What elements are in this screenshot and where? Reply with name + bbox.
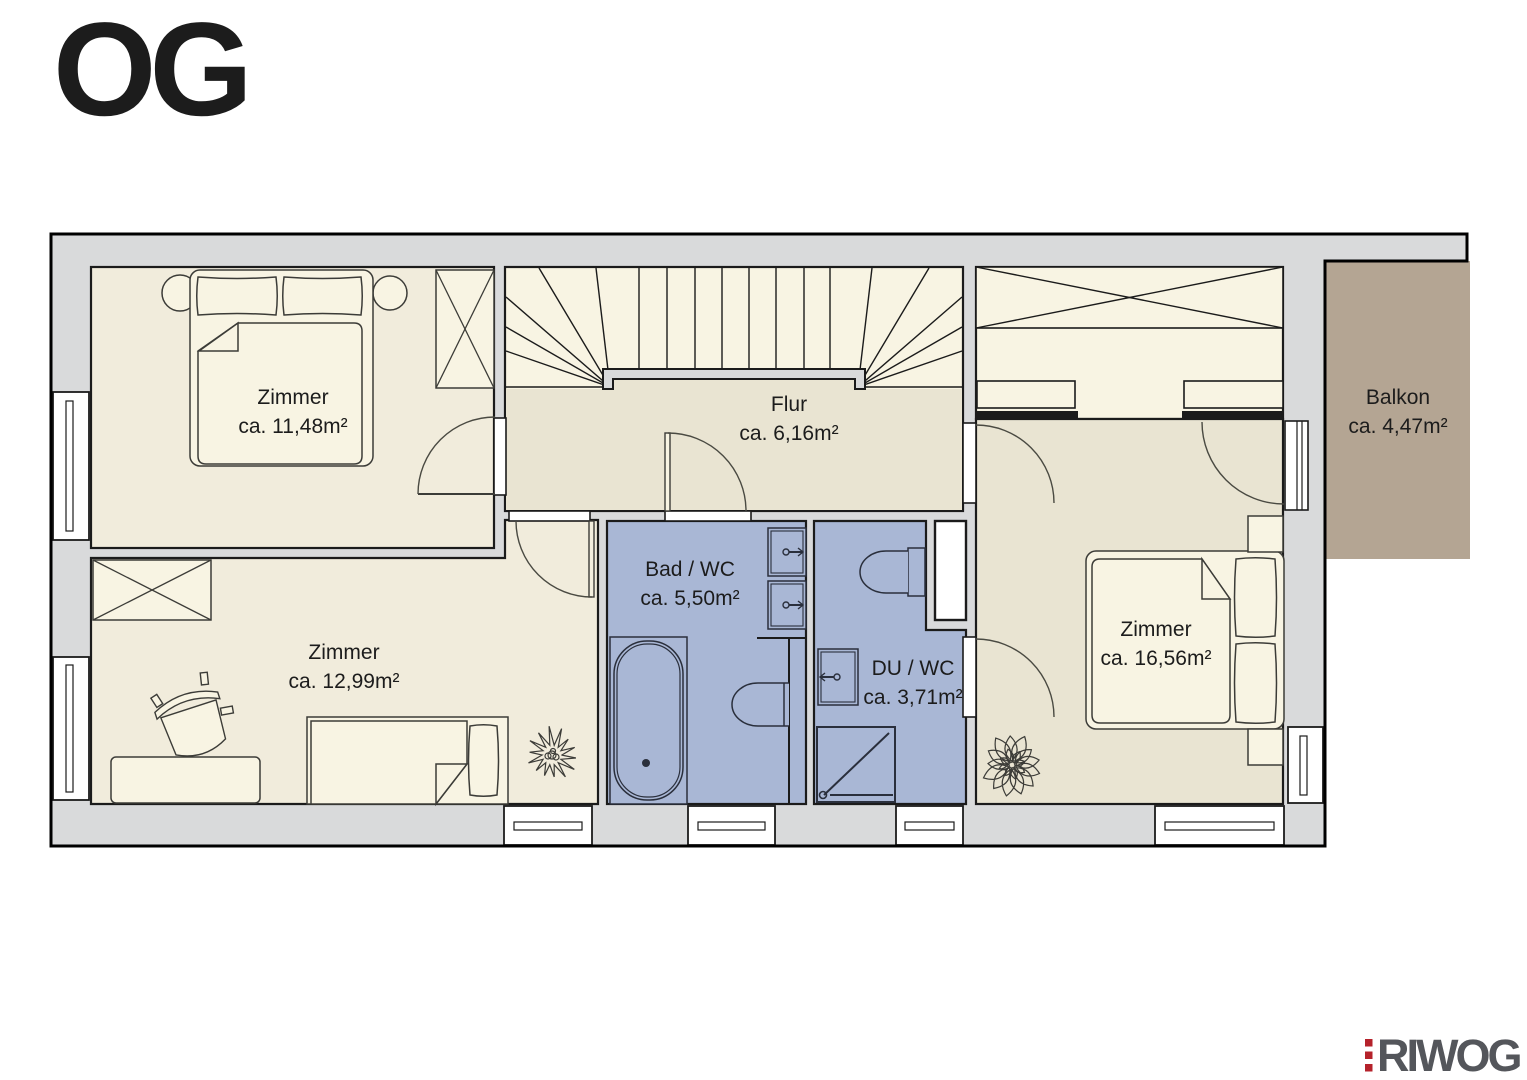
svg-text:ca. 6,16m²: ca. 6,16m² <box>739 422 838 445</box>
svg-text:Zimmer: Zimmer <box>308 641 379 664</box>
svg-text:Bad / WC: Bad / WC <box>645 558 735 581</box>
svg-text:OG: OG <box>53 0 246 144</box>
svg-text:ca. 3,71m²: ca. 3,71m² <box>863 686 962 709</box>
svg-text:RIWOG: RIWOG <box>1377 1030 1520 1080</box>
svg-text:ca. 16,56m²: ca. 16,56m² <box>1101 647 1212 670</box>
svg-text:DU / WC: DU / WC <box>872 657 955 680</box>
svg-text:Balkon: Balkon <box>1366 386 1430 409</box>
svg-text:Zimmer: Zimmer <box>257 386 328 409</box>
svg-text:ca. 11,48m²: ca. 11,48m² <box>238 415 347 438</box>
svg-text:ca. 5,50m²: ca. 5,50m² <box>640 587 739 610</box>
svg-text:ca. 12,99m²: ca. 12,99m² <box>289 670 400 693</box>
svg-text:ca. 4,47m²: ca. 4,47m² <box>1348 415 1447 438</box>
svg-text:Zimmer: Zimmer <box>1120 618 1191 641</box>
svg-text:Flur: Flur <box>771 393 807 416</box>
